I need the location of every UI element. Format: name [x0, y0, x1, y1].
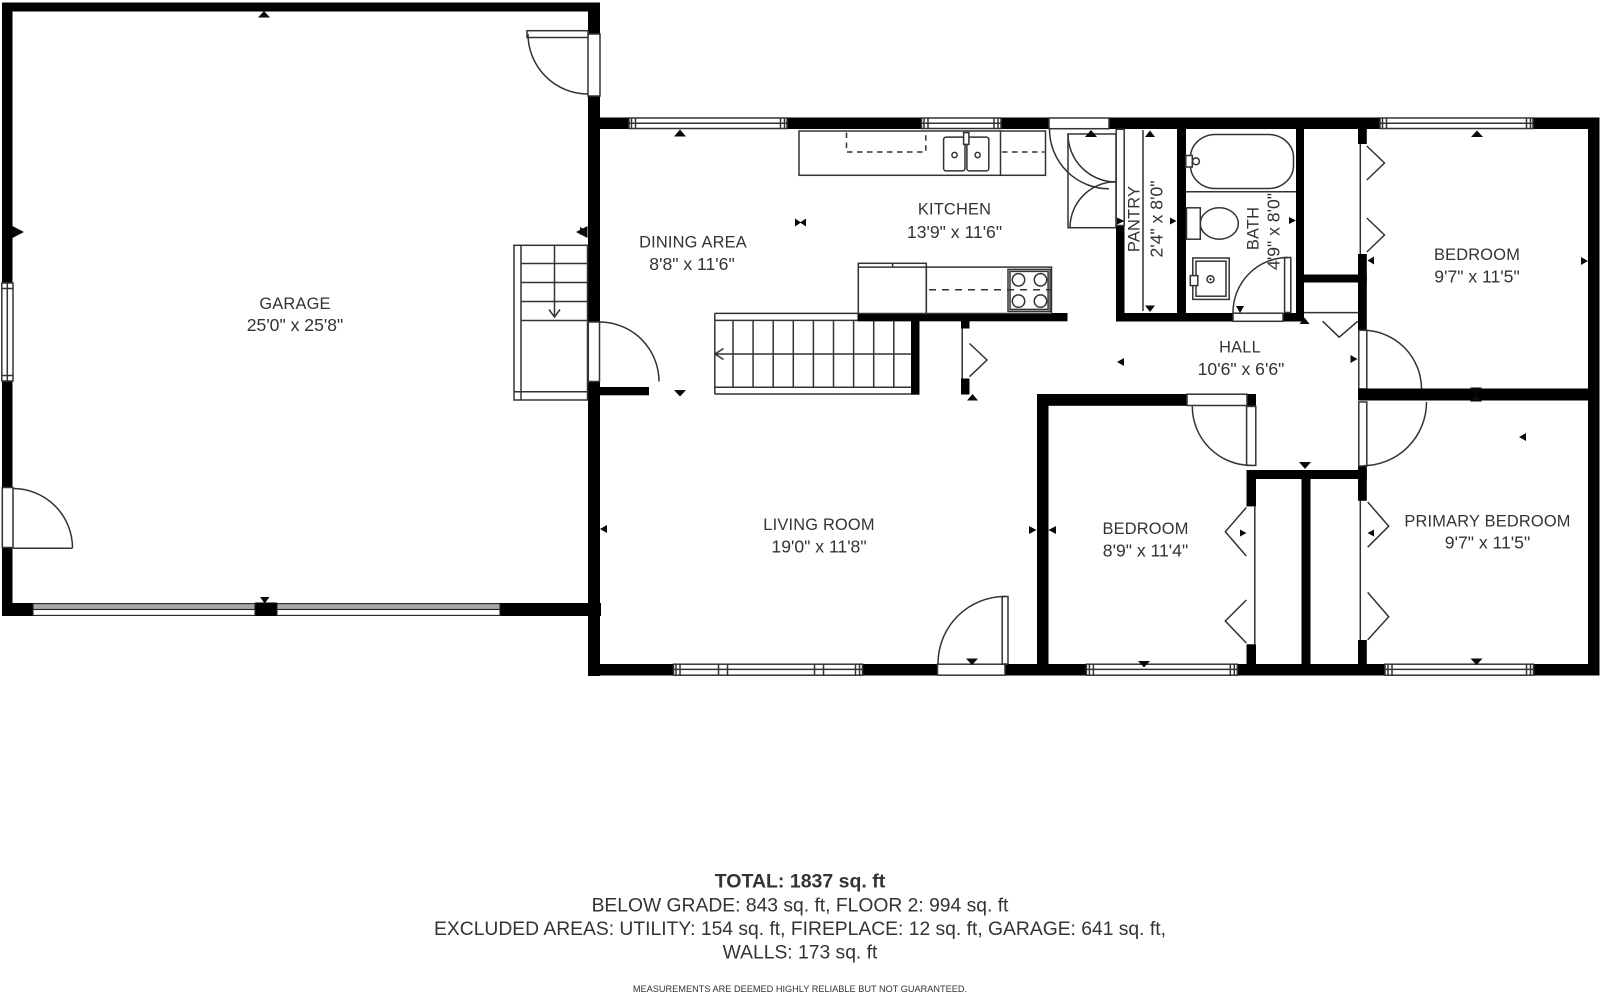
svg-text:EXCLUDED AREAS: UTILITY: 154 s: EXCLUDED AREAS: UTILITY: 154 sq. ft, FIR… — [434, 919, 1166, 940]
svg-text:2'4" x 8'0": 2'4" x 8'0" — [1147, 181, 1167, 258]
svg-text:BEDROOM: BEDROOM — [1102, 520, 1188, 538]
svg-text:MEASUREMENTS ARE DEEMED HIGHLY: MEASUREMENTS ARE DEEMED HIGHLY RELIABLE … — [633, 984, 967, 994]
svg-text:BATH: BATH — [1245, 207, 1263, 250]
svg-text:13'9" x 11'6": 13'9" x 11'6" — [907, 222, 1002, 242]
svg-text:DINING AREA: DINING AREA — [639, 234, 747, 252]
svg-text:KITCHEN: KITCHEN — [918, 201, 991, 219]
svg-text:WALLS: 173 sq. ft: WALLS: 173 sq. ft — [723, 943, 878, 964]
svg-text:19'0" x 11'8": 19'0" x 11'8" — [771, 537, 866, 557]
svg-text:LIVING ROOM: LIVING ROOM — [763, 516, 874, 534]
svg-text:TOTAL: 1837 sq. ft: TOTAL: 1837 sq. ft — [715, 871, 886, 893]
svg-text:9'7" x 11'5": 9'7" x 11'5" — [1434, 267, 1519, 287]
svg-text:8'8" x 11'6": 8'8" x 11'6" — [649, 254, 734, 274]
svg-text:PRIMARY BEDROOM: PRIMARY BEDROOM — [1404, 513, 1570, 531]
svg-text:BELOW GRADE: 843 sq. ft, FLOOR: BELOW GRADE: 843 sq. ft, FLOOR 2: 994 sq… — [592, 895, 1009, 916]
svg-text:9'7" x 11'5": 9'7" x 11'5" — [1445, 533, 1530, 553]
svg-text:10'6" x 6'6": 10'6" x 6'6" — [1198, 359, 1285, 379]
svg-text:GARAGE: GARAGE — [259, 295, 330, 313]
svg-text:PANTRY: PANTRY — [1126, 186, 1144, 252]
svg-text:4'9" x 8'0": 4'9" x 8'0" — [1264, 193, 1284, 270]
svg-text:25'0" x 25'8": 25'0" x 25'8" — [247, 315, 344, 335]
svg-text:BEDROOM: BEDROOM — [1434, 246, 1520, 264]
svg-text:8'9" x 11'4": 8'9" x 11'4" — [1103, 541, 1188, 561]
svg-text:HALL: HALL — [1219, 339, 1261, 357]
